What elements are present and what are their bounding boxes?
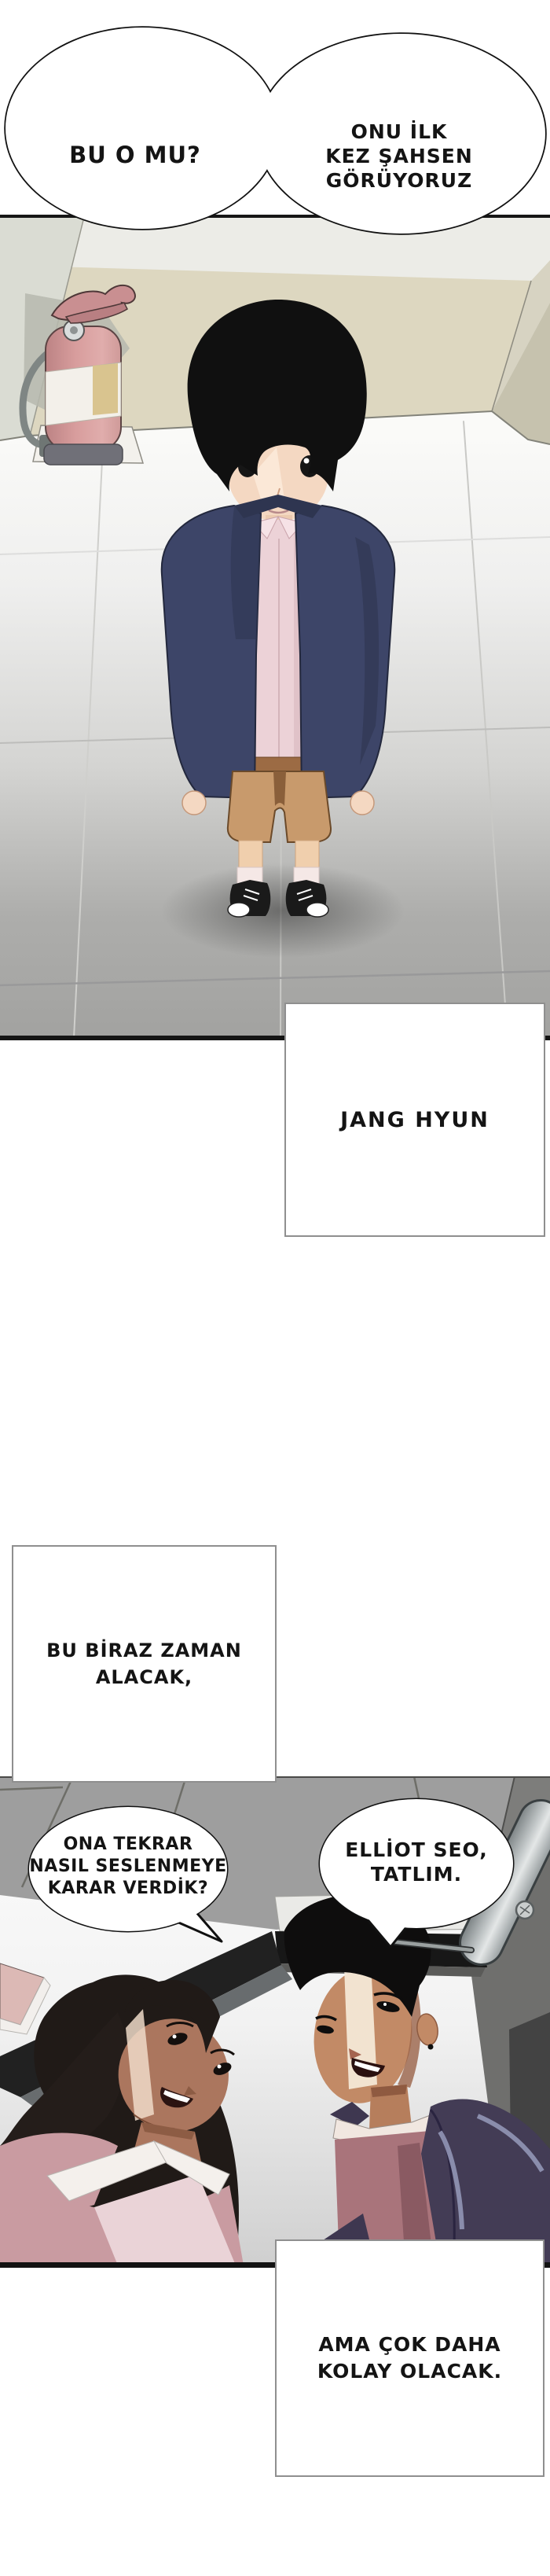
narration-2-text: AMA ÇOK DAHA KOLAY OLACAK. [317,2331,502,2385]
narration-box-2: AMA ÇOK DAHA KOLAY OLACAK. [275,2239,544,2477]
bubble-top-left-text: BU O MU? [33,142,237,168]
panel-room-top-view [0,215,550,1040]
narration-1-text: BU BİRAZ ZAMAN ALACAK, [46,1637,242,1691]
webtoon-page: BU O MU? ONU İLK KEZ ŞAHSEN GÖRÜYORUZ JA… [0,0,550,2576]
narration-line: ALACAK, [46,1664,242,1691]
bubble-line: ONA TEKRAR [18,1834,238,1856]
bubble-line: KARAR VERDİK? [18,1878,238,1900]
bubble-hatch-right-text: ELLİOT SEO, TATLIM. [314,1838,519,1886]
name-caption-box: JANG HYUN [284,1003,545,1237]
bubble-line: ELLİOT SEO, [314,1838,519,1862]
bubble-line: GÖRÜYORUZ [289,168,509,193]
narration-line: KOLAY OLACAK. [317,2358,502,2385]
bubble-line: ONU İLK [289,120,509,144]
bubble-line: KEZ ŞAHSEN [289,144,509,168]
bubble-line: TATLIM. [314,1862,519,1886]
name-caption-text: JANG HYUN [340,1108,489,1132]
narration-box-1: BU BİRAZ ZAMAN ALACAK, [12,1545,277,1783]
bubble-top-right-text: ONU İLK KEZ ŞAHSEN GÖRÜYORUZ [289,120,509,193]
bubble-hatch-left-text: ONA TEKRAR NASIL SESLENMEYE KARAR VERDİK… [18,1834,238,1900]
narration-line: AMA ÇOK DAHA [317,2331,502,2358]
narration-line: BU BİRAZ ZAMAN [46,1637,242,1664]
bubble-line: NASIL SESLENMEYE [18,1856,238,1878]
